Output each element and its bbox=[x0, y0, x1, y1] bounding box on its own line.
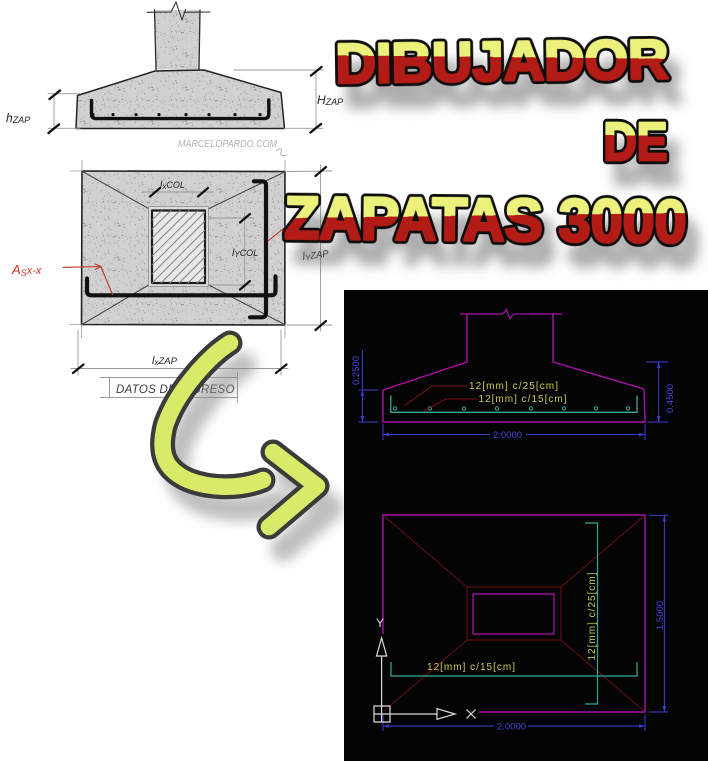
svg-text:Y: Y bbox=[376, 616, 384, 630]
svg-text:0.4500: 0.4500 bbox=[665, 384, 676, 413]
svg-text:lxZAP: lxZAP bbox=[152, 355, 178, 367]
svg-text:12[mm] c/15[cm]: 12[mm] c/15[cm] bbox=[479, 394, 567, 405]
svg-text:12[mm] c/15[cm]: 12[mm] c/15[cm] bbox=[427, 662, 515, 673]
svg-text:2.0000: 2.0000 bbox=[497, 722, 526, 733]
svg-text:ASx-x: ASx-x bbox=[11, 262, 42, 278]
svg-text:12[mm] c/25[cm]: 12[mm] c/25[cm] bbox=[587, 572, 598, 660]
svg-text:DIBUJADOR: DIBUJADOR bbox=[335, 27, 669, 95]
svg-text:MARCELOPARDO.COM: MARCELOPARDO.COM bbox=[178, 138, 277, 150]
svg-text:ZAPATAS 3000: ZAPATAS 3000 bbox=[284, 184, 687, 255]
svg-text:DE: DE bbox=[604, 112, 668, 172]
svg-text:hZAP: hZAP bbox=[6, 111, 30, 125]
svg-text:2.0000: 2.0000 bbox=[493, 430, 522, 441]
svg-text:1.5000: 1.5000 bbox=[655, 601, 666, 630]
svg-text:12[mm] c/25[cm]: 12[mm] c/25[cm] bbox=[469, 381, 558, 392]
svg-text:HZAP: HZAP bbox=[317, 93, 343, 107]
svg-text:0.2500: 0.2500 bbox=[351, 356, 362, 385]
